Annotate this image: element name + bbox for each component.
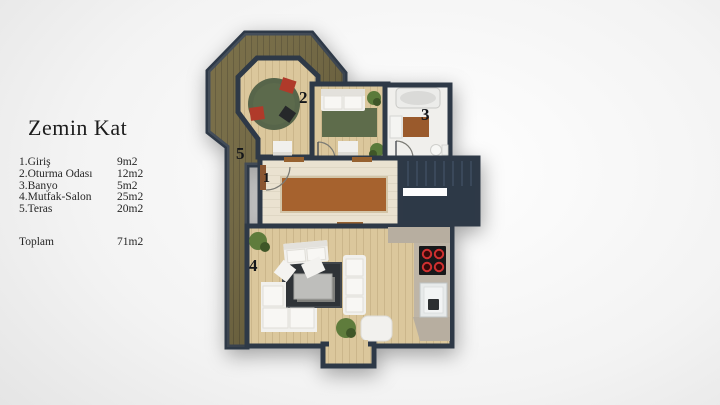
hall-rug <box>281 177 387 212</box>
sofa-cushion <box>346 297 363 312</box>
entry-step <box>323 340 374 366</box>
room-number-terrace: 5 <box>236 144 245 163</box>
bathtub-basin <box>400 91 436 105</box>
sofa-cushion <box>263 286 283 306</box>
toilet-tank <box>442 145 448 155</box>
sofa-cushion <box>290 308 314 328</box>
room-number-entry: 1 <box>263 171 270 186</box>
room-number-living: 2 <box>299 88 308 107</box>
sofa-back <box>321 89 365 96</box>
side-table <box>361 316 392 341</box>
toilet <box>431 145 442 156</box>
sofa-cushion <box>346 278 363 295</box>
loveseat <box>283 240 329 265</box>
plant <box>346 328 356 338</box>
sofa-cushion <box>344 96 362 109</box>
faucet <box>428 299 439 310</box>
green-rug <box>322 108 377 137</box>
room-number-bathroom: 3 <box>421 105 430 124</box>
sofa-cushion <box>324 96 342 109</box>
plant <box>373 98 381 106</box>
step-opening <box>329 340 368 349</box>
threshold <box>352 157 372 162</box>
stair-landing <box>403 188 447 196</box>
counter <box>388 227 450 243</box>
threshold <box>284 157 304 162</box>
sofa-cushion <box>263 308 288 328</box>
floorplan: 1 2 3 4 5 <box>0 0 720 405</box>
staircase <box>400 158 478 224</box>
sink <box>390 116 402 138</box>
entry-hall <box>260 157 402 227</box>
screenshot-root: Zemin Kat 1.Giriş 9m2 2.Oturma Odası 12m… <box>0 0 720 405</box>
sofa-nook <box>312 84 388 160</box>
plant <box>260 242 270 252</box>
bathroom <box>385 85 450 160</box>
kitchen-salon <box>247 226 452 346</box>
room-number-kitchen: 4 <box>249 256 258 275</box>
red-armchair <box>249 106 265 121</box>
sofa-cushion <box>346 259 363 276</box>
coffee-table <box>294 274 332 299</box>
